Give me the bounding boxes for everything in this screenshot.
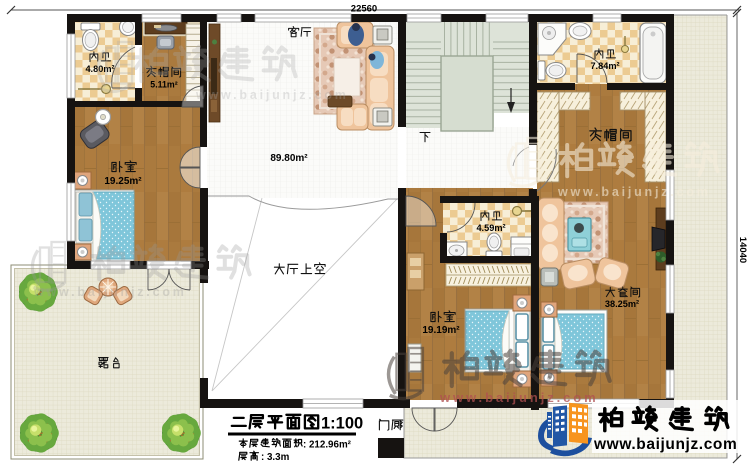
svg-text:www.baijunjz.com: www.baijunjz.com xyxy=(33,285,187,299)
svg-text:5.11m²: 5.11m² xyxy=(150,80,177,90)
svg-text:22560: 22560 xyxy=(351,4,377,15)
svg-text:: 3.3m: : 3.3m xyxy=(261,452,290,463)
svg-text:89.80m²: 89.80m² xyxy=(270,153,308,164)
svg-text:38.25m²: 38.25m² xyxy=(605,299,639,309)
svg-text:19.19m²: 19.19m² xyxy=(422,325,460,336)
svg-text:19.25m²: 19.25m² xyxy=(104,176,142,187)
svg-text:4.59m²: 4.59m² xyxy=(476,223,505,233)
svg-text:1:100: 1:100 xyxy=(321,415,363,433)
svg-text:www.baijunjz.com: www.baijunjz.com xyxy=(557,185,711,199)
svg-text:www.baijunjz.com: www.baijunjz.com xyxy=(439,390,599,405)
svg-text:www.baijunjz.com: www.baijunjz.com xyxy=(195,88,349,102)
svg-text:7.84m²: 7.84m² xyxy=(590,61,619,71)
svg-text:www.baijunjz.com: www.baijunjz.com xyxy=(593,436,737,453)
svg-text:14040: 14040 xyxy=(737,237,748,263)
svg-text:: 212.96m²: : 212.96m² xyxy=(303,440,352,451)
